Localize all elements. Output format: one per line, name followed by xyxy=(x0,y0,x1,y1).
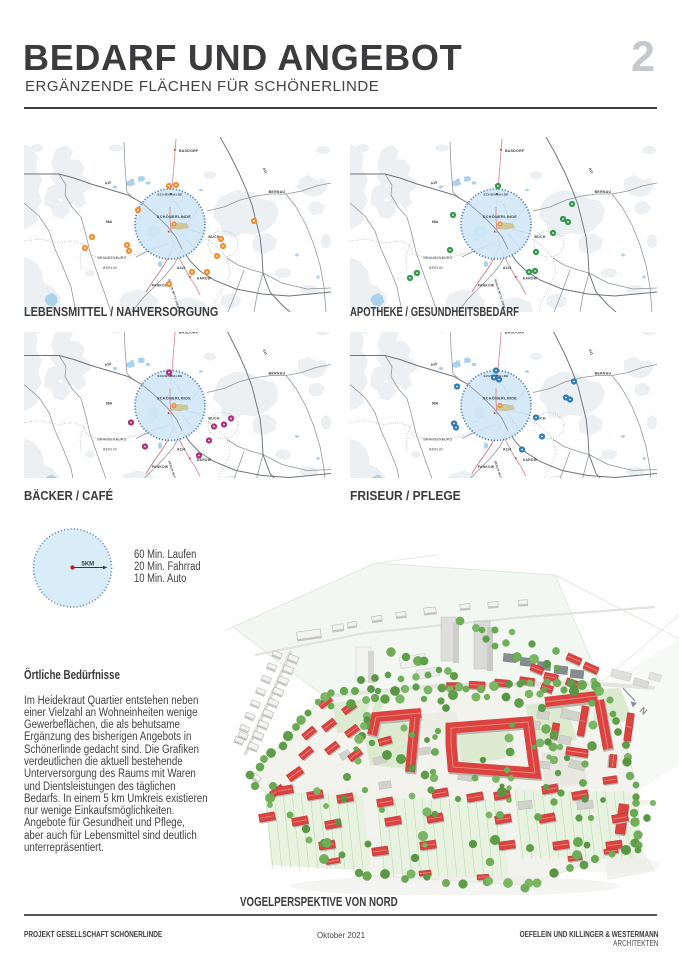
svg-text:5KM: 5KM xyxy=(82,562,95,568)
